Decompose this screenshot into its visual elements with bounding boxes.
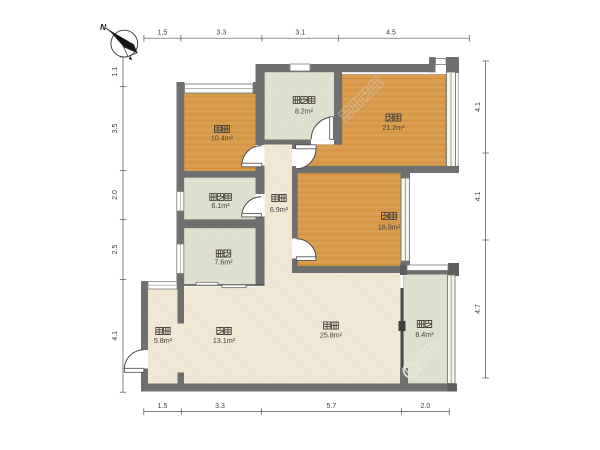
svg-text:6.1m²: 6.1m² [211,201,230,210]
svg-text:3.3: 3.3 [215,403,225,410]
svg-text:3.1: 3.1 [295,30,305,37]
svg-text:3.5: 3.5 [112,124,119,134]
svg-text:8.4m²: 8.4m² [415,330,434,339]
svg-text:13.1m²: 13.1m² [213,336,236,345]
svg-text:7.6m²: 7.6m² [214,258,233,267]
svg-text:1.5: 1.5 [158,403,168,410]
svg-text:2.5: 2.5 [112,245,119,255]
svg-text:3.3: 3.3 [217,30,227,37]
svg-text:2.0: 2.0 [421,403,431,410]
svg-text:1.1: 1.1 [112,67,119,77]
svg-text:25.8m²: 25.8m² [320,331,343,340]
svg-text:1.5: 1.5 [158,30,168,37]
svg-text:21.2m²: 21.2m² [382,123,405,132]
svg-text:N: N [100,22,107,32]
svg-text:4.1: 4.1 [475,192,482,202]
svg-text:5.8m²: 5.8m² [154,336,173,345]
svg-text:4.1: 4.1 [475,102,482,112]
svg-text:16.9m²: 16.9m² [378,223,401,232]
svg-text:5.7: 5.7 [327,403,337,410]
svg-text:10.4m²: 10.4m² [211,134,234,143]
svg-text:4.7: 4.7 [475,304,482,314]
svg-text:2.0: 2.0 [112,190,119,200]
svg-text:6.9m²: 6.9m² [270,205,289,214]
svg-text:4.1: 4.1 [112,331,119,341]
svg-text:8.2m²: 8.2m² [295,107,314,116]
svg-text:4.5: 4.5 [386,30,396,37]
